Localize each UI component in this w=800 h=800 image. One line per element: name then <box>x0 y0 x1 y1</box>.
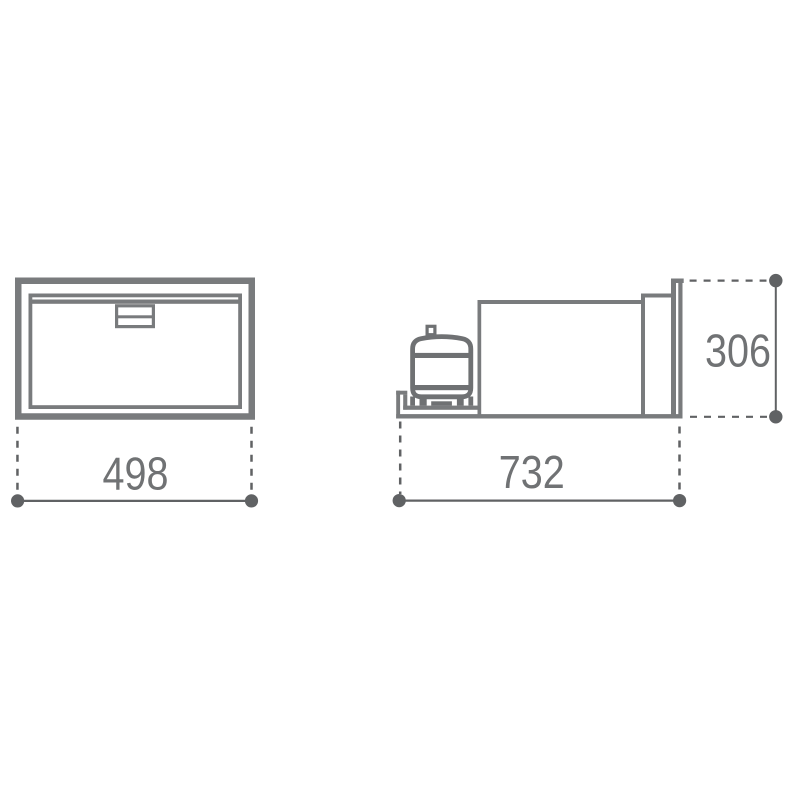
svg-text:306: 306 <box>705 325 771 377</box>
svg-text:732: 732 <box>499 446 565 498</box>
svg-text:498: 498 <box>103 448 169 500</box>
